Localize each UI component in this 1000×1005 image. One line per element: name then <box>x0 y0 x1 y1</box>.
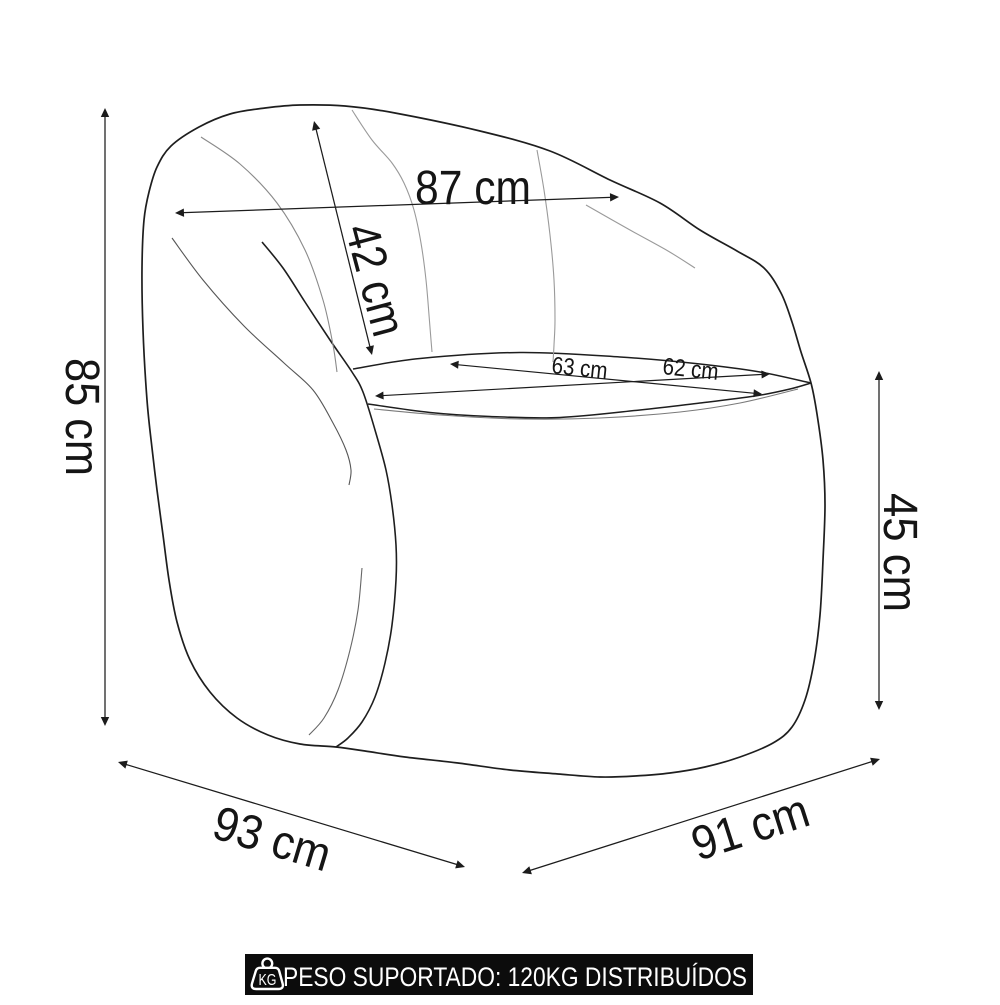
svg-text:87 cm: 87 cm <box>415 162 531 215</box>
svg-text:KG: KG <box>259 972 277 989</box>
svg-text:PESO SUPORTADO: 120KG DISTRIBU: PESO SUPORTADO: 120KG DISTRIBUÍDOS <box>283 962 747 992</box>
svg-text:45 cm: 45 cm <box>873 493 926 612</box>
svg-text:85 cm: 85 cm <box>55 358 108 476</box>
